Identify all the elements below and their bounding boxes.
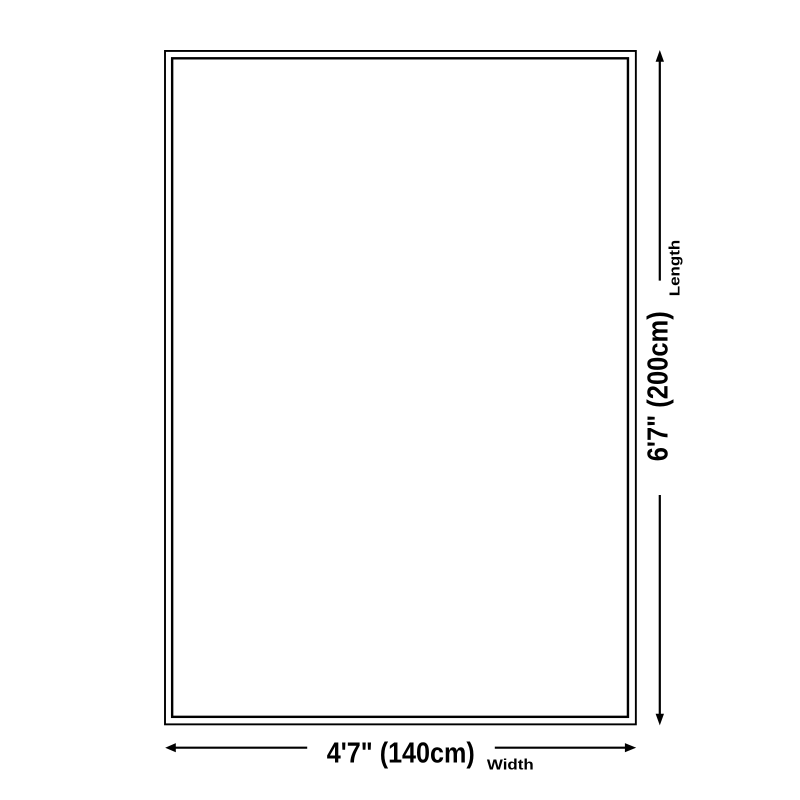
svg-text:Width: Width xyxy=(487,757,534,774)
svg-text:Length: Length xyxy=(666,240,683,297)
svg-text:6'7" (200cm): 6'7" (200cm) xyxy=(643,311,675,461)
svg-text:4'7" (140cm): 4'7" (140cm) xyxy=(327,737,475,769)
